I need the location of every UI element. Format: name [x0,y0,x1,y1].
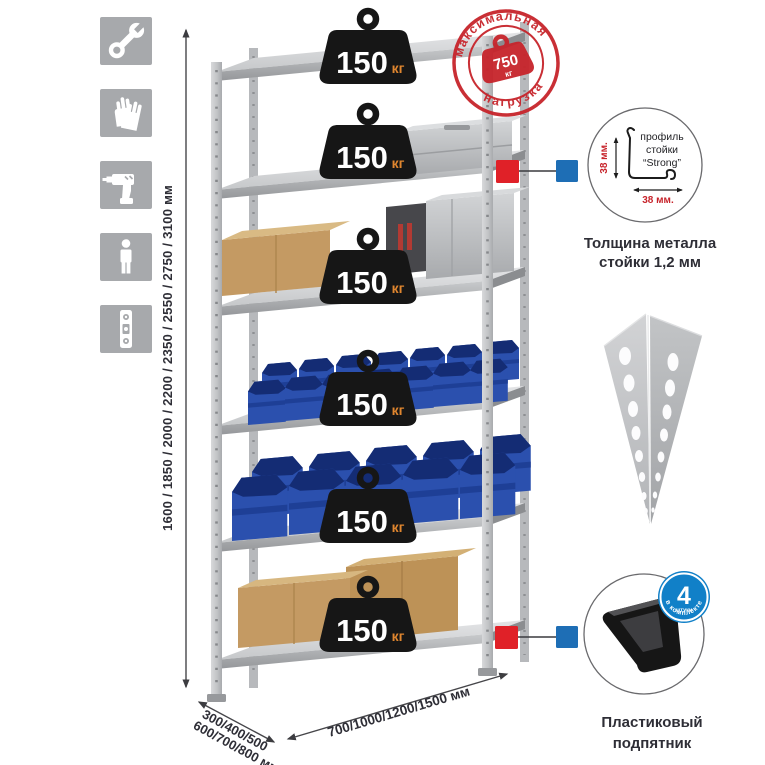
foot-caption: Пластиковый подпятник [601,714,702,752]
profile-caption-line2: стойки 1,2 мм [599,254,701,271]
quantity-badge: 4 штуки в комплекте [658,571,710,623]
red-marker [496,160,519,183]
profile-callout-connector [496,160,578,183]
weight-unit: кг [392,280,405,296]
weight-unit: кг [392,402,405,418]
height-options-label: 1600 / 1850 / 2000 / 2200 / 2350 / 2550 … [160,185,175,531]
feature-icons-sidebar [100,17,152,353]
product-infographic: 1600 / 1850 / 2000 / 2200 / 2350 / 2550 … [0,0,765,765]
profile-label-line1: профиль [640,131,684,143]
profile-label-line2: стойки [646,144,678,156]
profile-caption: Толщина металла стойки 1,2 мм [584,235,717,271]
perforated-angle-post [604,314,702,524]
plastic-foot-detail: 4 штуки в комплекте [584,571,710,694]
foot-callout-connector [495,626,578,649]
profile-height-dim: 38 мм. [599,142,610,174]
blue-marker [556,160,578,182]
aluminium-case [426,187,530,279]
weight-150kg: 150 кг [319,11,416,84]
drill-icon [100,161,152,209]
badge-value: 4 [677,582,691,610]
red-marker [495,626,518,649]
weight-unit: кг [392,155,405,171]
profile-sketch-label: профиль стойки “Strong” [640,131,684,169]
weight-150kg: 150 кг [319,106,416,179]
width-dimension: 700/1000/1200/1500 мм [288,674,507,740]
profile-label-line3: “Strong” [643,157,681,169]
depth-dimension: 300/400/500 600/700/800 мм [191,702,288,765]
height-dimension: 1600 / 1850 / 2000 / 2200 / 2350 / 2550 … [160,30,186,687]
foot-caption-line1: Пластиковый [601,714,702,731]
weight-value: 150 [336,613,388,648]
weight-value: 150 [336,387,388,422]
profile-caption-line1: Толщина металла [584,235,717,252]
wrench-icon [100,17,152,65]
max-load-stamp: максимальная нагрузка 750 кг [442,0,569,126]
foot-caption-line2: подпятник [613,735,692,752]
blue-marker [556,626,578,648]
weight-unit: кг [392,60,405,76]
weight-unit: кг [392,519,405,535]
gloves-icon [100,89,152,137]
profile-width-dim: 38 мм. [642,195,674,206]
post-profile-detail: 38 мм. 38 мм. профиль стойки “Strong” [588,108,702,222]
person-icon [100,233,152,281]
width-options-label: 700/1000/1200/1500 мм [326,684,472,740]
weight-unit: кг [392,628,405,644]
weight-value: 150 [336,265,388,300]
weight-value: 150 [336,504,388,539]
weight-value: 150 [336,140,388,175]
spirit-level-icon [100,305,152,353]
weight-value: 150 [336,45,388,80]
